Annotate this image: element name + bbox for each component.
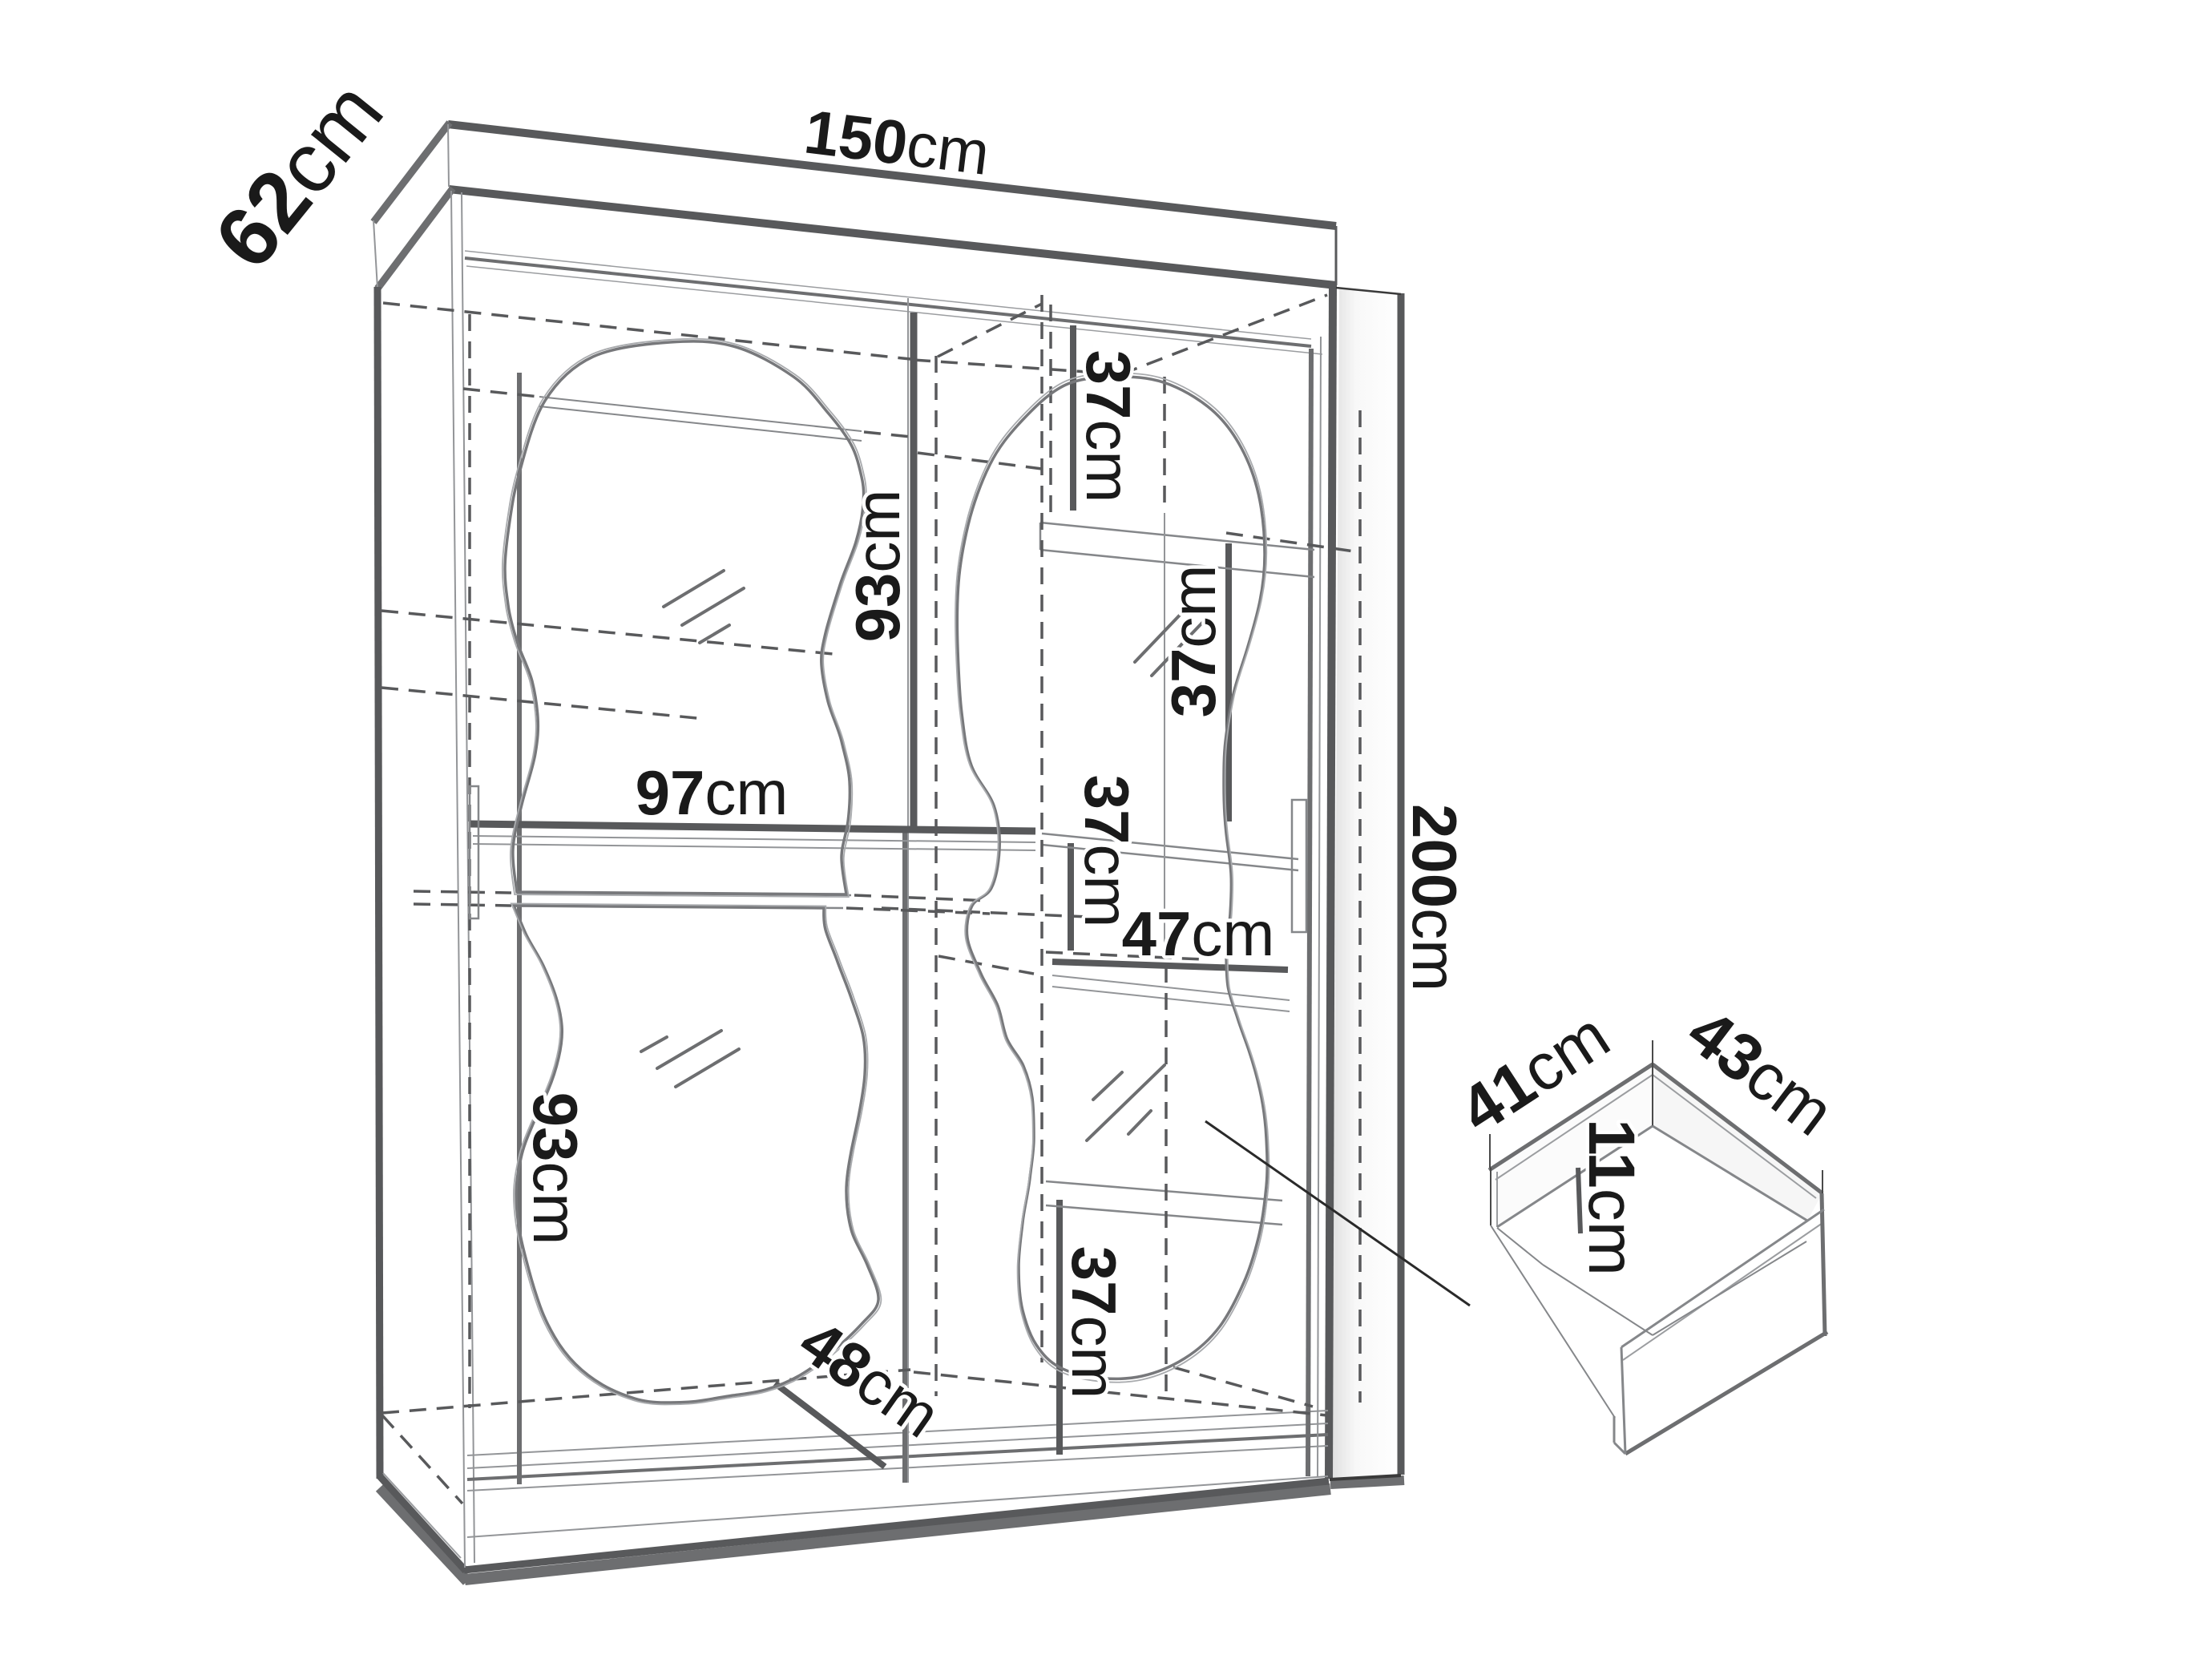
svg-text:37cm: 37cm [1158,565,1229,718]
svg-text:37cm: 37cm [1059,1246,1129,1399]
svg-text:97cm: 97cm [636,757,789,828]
svg-text:11cm: 11cm [1575,1119,1648,1276]
svg-text:200cm: 200cm [1399,804,1470,991]
svg-text:47cm: 47cm [1122,898,1275,969]
svg-text:37cm: 37cm [1073,350,1144,503]
svg-text:93cm: 93cm [520,1092,591,1245]
svg-text:93cm: 93cm [842,490,913,643]
